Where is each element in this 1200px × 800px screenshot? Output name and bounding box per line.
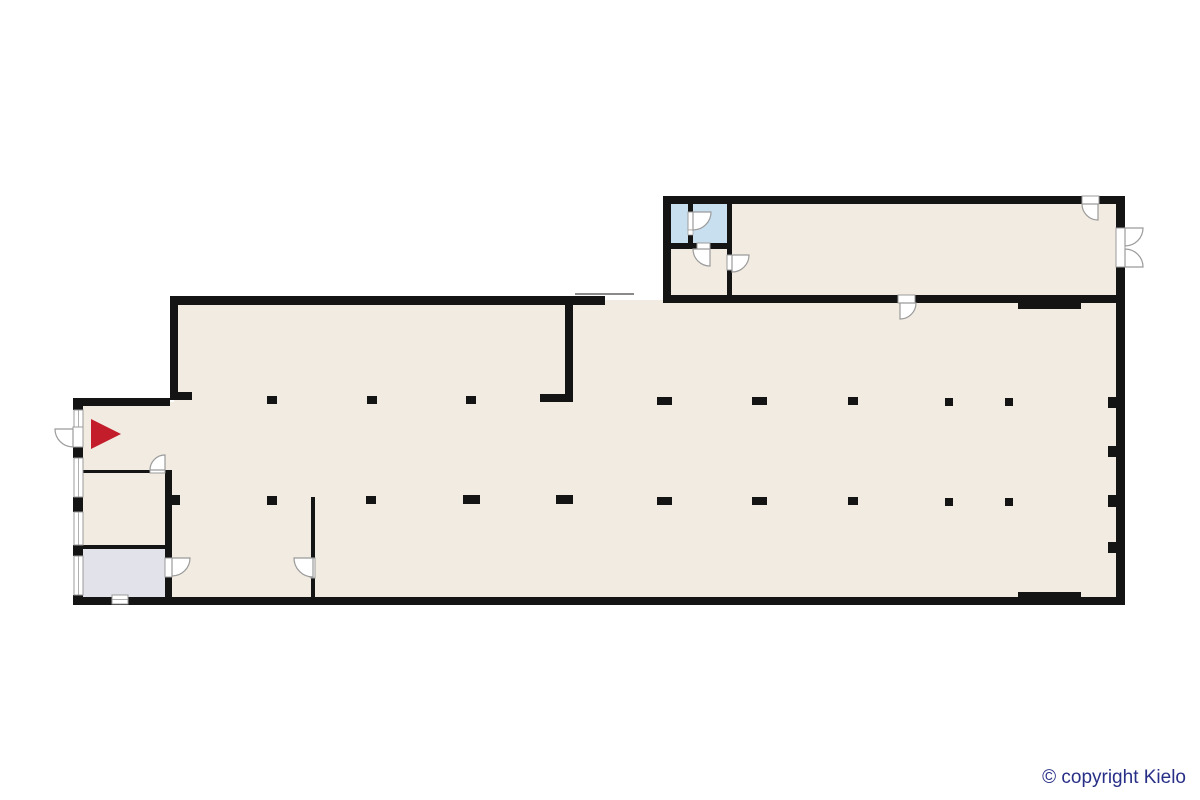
floor-plan-canvas [0,0,1200,800]
column [267,396,277,404]
nw-vertical-wall [170,296,178,400]
column [463,495,480,504]
upper-left-wall [663,196,671,303]
left-rooms-right-wall-upper [165,470,172,558]
bottom-beam [1018,592,1081,598]
copyright-text: © copyright Kielo [1042,766,1186,790]
wall-notch [688,230,693,235]
vestibule-bottom-wall [83,470,150,473]
main-top-wall [170,296,605,305]
column [172,495,180,505]
left-rooms-right-wall-lower [165,577,172,598]
column [367,396,377,404]
column [1005,398,1013,406]
utility-room-floor [79,548,168,598]
column [657,397,672,405]
partition-wall-lower [311,578,315,598]
column [752,397,767,405]
facade-block [73,595,83,605]
wet-room-1-floor [670,204,690,244]
l-wall-vertical [565,296,573,402]
column [848,497,858,505]
door-gap [165,558,172,577]
step-wall [73,398,170,406]
column [657,497,672,505]
floors [77,200,1119,601]
facade-block [73,545,83,556]
door-gap [697,243,710,249]
double-door-gap [1116,228,1125,267]
door-gap [688,212,693,230]
top-thin-line [575,293,634,295]
upper-top-wall [663,196,1125,204]
column [752,497,767,505]
door-gap [1082,196,1099,204]
upper-section-floor [667,200,1119,297]
bottom-wall [73,597,1125,605]
door-gap [898,295,915,303]
wall-pilaster [1108,446,1116,457]
entrance-door-gap [73,427,83,447]
column [1005,498,1013,506]
column [556,495,573,504]
l-wall-foot [540,394,573,402]
upper-block-right-wall [727,198,732,295]
double-door-swing-arc [1125,249,1143,267]
column [366,496,376,504]
main-hall-floor [77,300,1119,601]
nw-wall-foot [170,392,192,400]
door-gap [727,255,732,270]
utility-top-wall [79,545,170,549]
main-right-wall [1116,296,1125,605]
double-door-swing-arc [1125,228,1143,246]
upper-bottom-wall [663,295,1125,303]
upper-beam [1018,303,1081,309]
column [267,496,277,505]
column [848,397,858,405]
facade-block [73,398,83,410]
partition-wall-upper [311,497,315,558]
facade-block [73,497,83,512]
entrance-door-swing-arc [55,429,73,447]
column [945,498,953,506]
wall-pilaster [1108,495,1116,507]
facade-block [73,447,83,458]
column [466,396,476,404]
wall-pilaster [1108,397,1116,408]
wall-pilaster [1108,542,1116,553]
column [945,398,953,406]
